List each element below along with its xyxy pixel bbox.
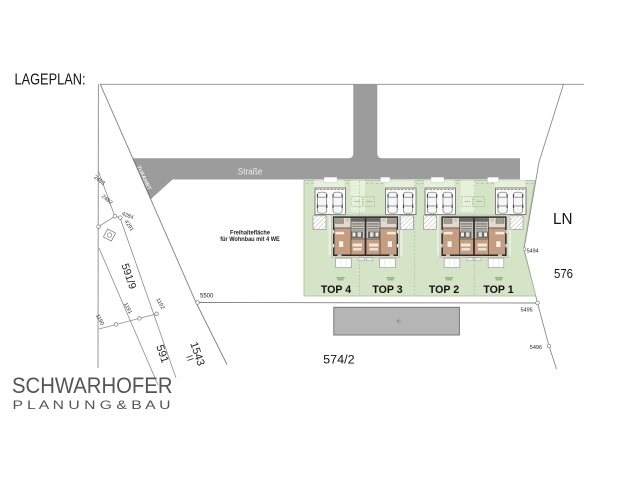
svg-text:TOP 3: TOP 3 [372, 284, 402, 296]
svg-text:LAGEPLAN:: LAGEPLAN: [15, 72, 86, 89]
svg-text:576: 576 [554, 266, 573, 281]
svg-text:574/2: 574/2 [323, 354, 355, 366]
svg-text:P L A N U N G & B A U: P L A N U N G & B A U [13, 400, 171, 412]
svg-text:5494: 5494 [527, 248, 539, 254]
svg-text:TOP 2: TOP 2 [429, 284, 459, 296]
svg-text:LN: LN [553, 211, 573, 228]
svg-text:5496: 5496 [530, 345, 542, 351]
svg-text:für Wohnbau mit 4 WE: für Wohnbau mit 4 WE [220, 236, 280, 243]
svg-text:5495: 5495 [521, 307, 533, 313]
svg-text:TOP 1: TOP 1 [483, 284, 513, 296]
svg-text:Straße: Straße [238, 165, 263, 176]
svg-text:TOP 4: TOP 4 [321, 284, 351, 296]
svg-text:SCHWARHOFER: SCHWARHOFER [12, 373, 173, 398]
svg-text:5500: 5500 [200, 293, 214, 299]
